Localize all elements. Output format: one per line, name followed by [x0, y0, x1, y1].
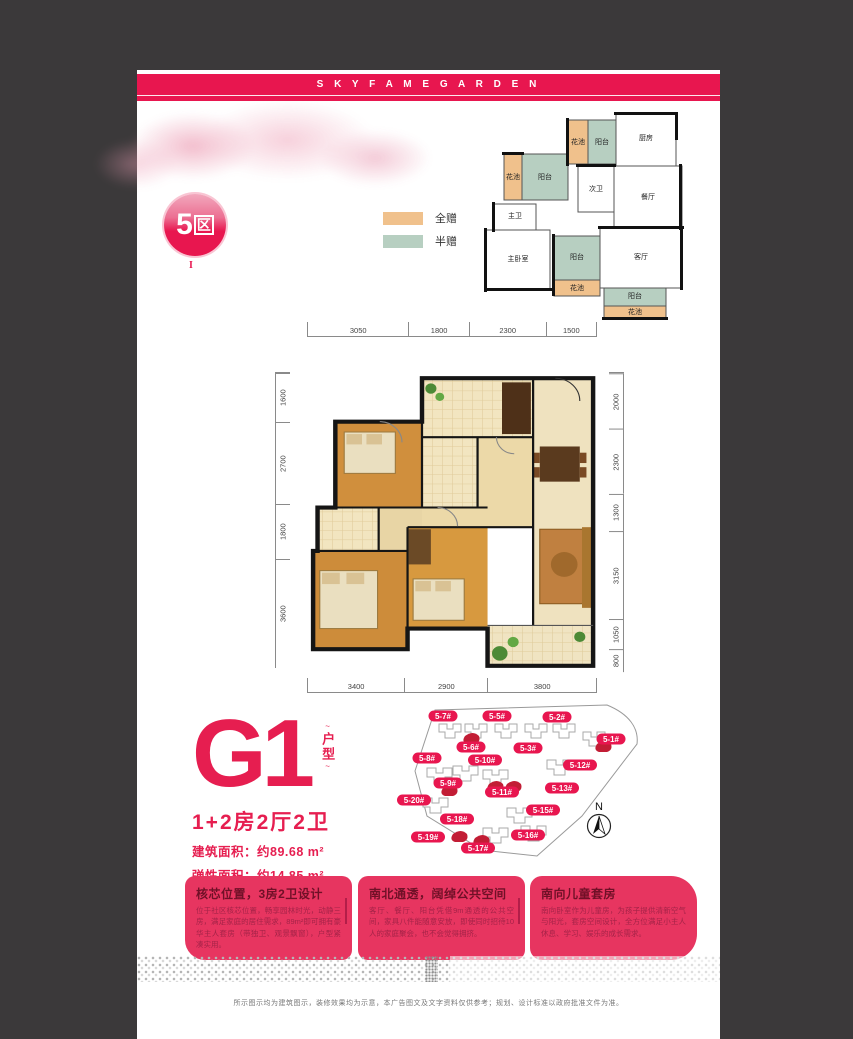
room-label: 阳台 [595, 137, 609, 146]
dim-rail-bottom: 340029003800 [307, 678, 597, 693]
building-label-text: 5-6# [463, 743, 480, 752]
unit-type-tag: ~ 户型 ~ [318, 724, 337, 770]
unit-code: G1 [192, 710, 310, 798]
unit-type-label: 户型 [318, 732, 337, 762]
room-label: 次卫 [589, 184, 603, 193]
site-plan: 5-7#5-5#5-2#5-6#5-3#5-1#5-8#5-10#5-12#5-… [387, 696, 652, 879]
building-label-text: 5-17# [468, 844, 489, 853]
room-label: 阳台 [628, 291, 642, 300]
feature-title: 南北通透，阔绰公共空间 [369, 885, 514, 902]
building-label-text: 5-20# [404, 796, 425, 805]
building-label-text: 5-5# [489, 712, 506, 721]
building-label-text: 5-3# [520, 744, 537, 753]
dim-rail-top: 3050180023001500 [307, 322, 597, 337]
north-compass: N [588, 801, 611, 838]
dimension-segment: 1600 [275, 373, 290, 422]
feature-body: 位于社区核芯位置，畅享园林时光，动静三房，满足家庭的居住需求，89m²即可拥有豪… [196, 905, 341, 950]
building-label-text: 5-9# [440, 779, 457, 788]
dimension-segment: 2300 [470, 322, 547, 337]
building-label-text: 5-10# [475, 756, 496, 765]
feature-body: 南向卧室作为儿童房，为孩子提供清新空气与阳光，套房空间设计，全方位满足小主人休息… [541, 905, 686, 939]
feature-title: 南向儿童套房 [541, 885, 686, 902]
feature-block-child-suite: 南向儿童套房 南向卧室作为儿童房，为孩子提供清新空气与阳光，套房空间设计，全方位… [530, 876, 697, 960]
full-gift-label: 全赠 [435, 210, 457, 226]
dimension-segment: 1500 [547, 322, 597, 337]
key-plan-drawing: 花池阳台厨房次卫餐厅花池阳台主卫主卧室阳台花池客厅阳台花池 [478, 108, 700, 323]
zone-suffix: 区 [194, 215, 214, 235]
dimension-segment: 3800 [488, 678, 597, 693]
dimension-segment: 1300 [609, 494, 624, 531]
building-label-text: 5-2# [549, 713, 566, 722]
dimension-segment: 2700 [275, 422, 290, 504]
room-label: 花池 [506, 172, 520, 181]
unit-area-build: 建筑面积：约89.68 m² [192, 841, 412, 860]
dim-rail-left: 1600270018003600 [275, 372, 290, 668]
floor-plan-drawing [302, 372, 602, 672]
dimension-segment: 3400 [308, 678, 405, 693]
dimension-segment: 2300 [609, 429, 624, 494]
halftone-band [137, 956, 720, 982]
building-label-text: 5-18# [447, 815, 468, 824]
building-label-text: 5-12# [570, 761, 591, 770]
legend-row-half-gift: 半赠 [383, 233, 457, 249]
dimension-segment: 3050 [308, 322, 409, 337]
dimension-segment: 1050 [609, 619, 624, 649]
unit-info: G1 ~ 户型 ~ 1+2房2厅2卫 建筑面积：约89.68 m² 弹性面积：约… [192, 710, 412, 884]
flyer-page: S K Y F A M E G A R D E N 5 区 I 全赠 半赠 [137, 70, 720, 1039]
main-floor-plan [302, 372, 602, 677]
building-label-text: 5-15# [533, 806, 554, 815]
building-label-text: 5-8# [419, 754, 436, 763]
building-label-text: 5-11# [492, 788, 513, 797]
room-label: 花池 [571, 137, 585, 146]
feature-accent-mark [345, 898, 347, 924]
dim-rail-right: 20002300130031501050800 [609, 372, 624, 672]
key-plan: 花池阳台厨房次卫餐厅花池阳台主卫主卧室阳台花池客厅阳台花池 [478, 108, 700, 328]
legend-row-full-gift: 全赠 [383, 210, 457, 226]
feature-accent-mark [518, 898, 520, 924]
half-gift-label: 半赠 [435, 233, 457, 249]
room-label: 花池 [570, 283, 584, 292]
building-label-text: 5-19# [418, 833, 439, 842]
building-label-text: 5-7# [435, 712, 452, 721]
room-label: 厨房 [639, 133, 653, 142]
room-label: 客厅 [634, 252, 648, 261]
building-label-text: 5-13# [552, 784, 573, 793]
room-label: 主卧室 [508, 254, 529, 263]
room-label: 阳台 [570, 252, 584, 261]
room-label: 阳台 [538, 172, 552, 181]
disclaimer-text: 所示图示均为建筑图示，装修效果均为示意，本广告图文及文字资料仅供参考；规划、设计… [137, 998, 720, 1008]
zone-tick-mark: I [189, 260, 193, 271]
feature-block-north-south: 南北通透，阔绰公共空间 客厅、餐厅、阳台凭借9m通透的公共空间，家具八件能随意安… [358, 876, 525, 960]
type-deco-bottom: ~ [325, 764, 330, 770]
room-label: 餐厅 [641, 192, 655, 201]
feature-title: 核芯位置，3房2卫设计 [196, 885, 341, 902]
feature-block-core-position: 核芯位置，3房2卫设计 位于社区核芯位置，畅享园林时光，动静三房，满足家庭的居住… [185, 876, 352, 960]
dimension-segment: 800 [609, 649, 624, 672]
halftone-fade [450, 956, 720, 982]
watercolor-splash [95, 92, 445, 212]
room-label: 花池 [628, 307, 642, 316]
dimension-segment: 2000 [609, 373, 624, 429]
brand-title: S K Y F A M E G A R D E N [317, 79, 541, 90]
zone-badge: 5 区 [164, 194, 226, 256]
type-deco-top: ~ [325, 724, 330, 730]
halftone-dense-patch [425, 956, 438, 982]
site-plan-drawing: 5-7#5-5#5-2#5-6#5-3#5-1#5-8#5-10#5-12#5-… [387, 696, 652, 874]
feature-body: 客厅、餐厅、阳台凭借9m通透的公共空间，家具八件能随意安放，即使同时招待10人的… [369, 905, 514, 939]
room-label: 主卫 [508, 211, 522, 220]
poster-canvas: S K Y F A M E G A R D E N 5 区 I 全赠 半赠 [0, 0, 853, 1039]
dimension-segment: 3150 [609, 531, 624, 619]
full-gift-swatch [383, 212, 423, 225]
north-letter: N [595, 801, 603, 813]
zone-number: 5 [176, 210, 193, 240]
gift-legend: 全赠 半赠 [383, 210, 457, 256]
building-label-text: 5-16# [518, 831, 539, 840]
building-label-text: 5-1# [603, 735, 620, 744]
dimension-segment: 2900 [405, 678, 488, 693]
half-gift-swatch [383, 235, 423, 248]
dimension-segment: 1800 [275, 504, 290, 559]
dimension-segment: 3600 [275, 559, 290, 668]
unit-layout: 1+2房2厅2卫 [192, 806, 412, 836]
dimension-segment: 1800 [409, 322, 469, 337]
